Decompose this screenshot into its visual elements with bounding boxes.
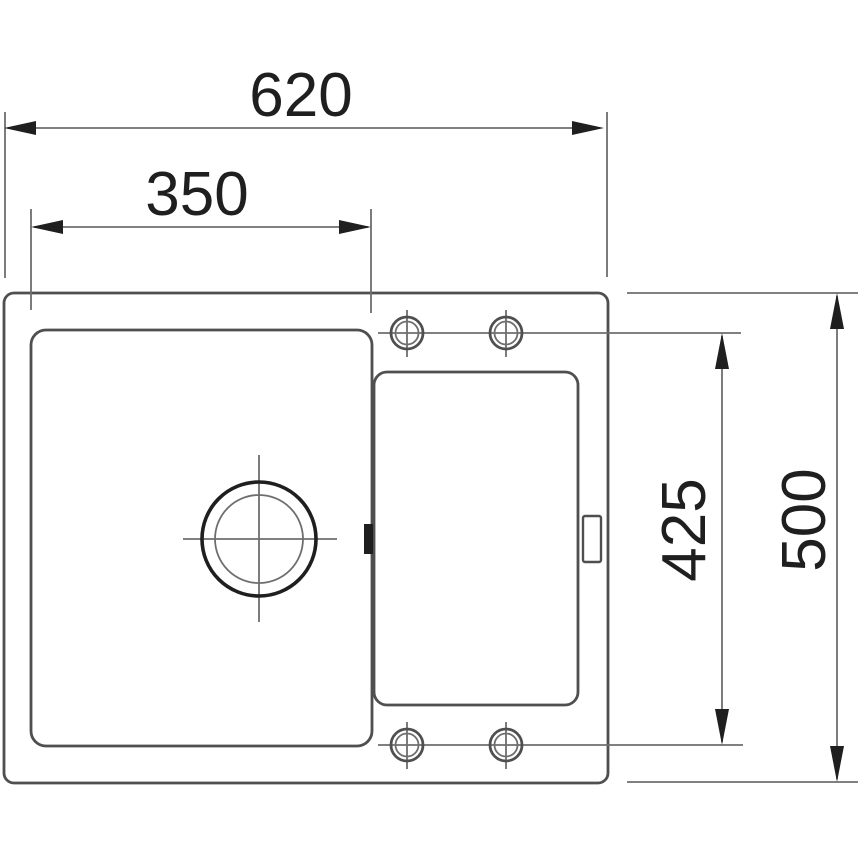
tap-hole-top-left (391, 310, 423, 357)
tap-hole-top-right (490, 310, 522, 357)
dimension-tap-hole-span: 425 (650, 333, 729, 745)
dimension-label-overall-width: 620 (249, 61, 352, 130)
arrowhead-left-icon (31, 220, 63, 234)
arrowhead-right-icon (572, 121, 604, 135)
dimension-overall-width: 620 (4, 61, 607, 278)
tap-hole-bottom-right (490, 722, 522, 769)
drainboard-outline (374, 372, 578, 705)
sink-top-view (4, 293, 608, 783)
arrowhead-right-icon (339, 220, 371, 234)
arrowhead-up-icon (715, 333, 729, 369)
arrowhead-down-icon (715, 709, 729, 745)
sink-dimension-drawing: 620 350 425 500 (0, 0, 860, 860)
dimension-label-tap-hole-span: 425 (650, 478, 719, 581)
arrowhead-left-icon (4, 121, 36, 135)
tap-hole-bottom-left (391, 722, 423, 769)
arrowhead-up-icon (830, 293, 844, 329)
dimension-bowl-width: 350 (31, 160, 371, 313)
dimension-label-overall-depth: 500 (770, 468, 839, 571)
overflow-tab (364, 524, 373, 554)
sink-outline (4, 293, 608, 783)
arrowhead-down-icon (830, 746, 844, 782)
dimension-label-bowl-width: 350 (145, 160, 248, 229)
drain-hole (183, 455, 337, 622)
overflow-clip (583, 516, 601, 562)
